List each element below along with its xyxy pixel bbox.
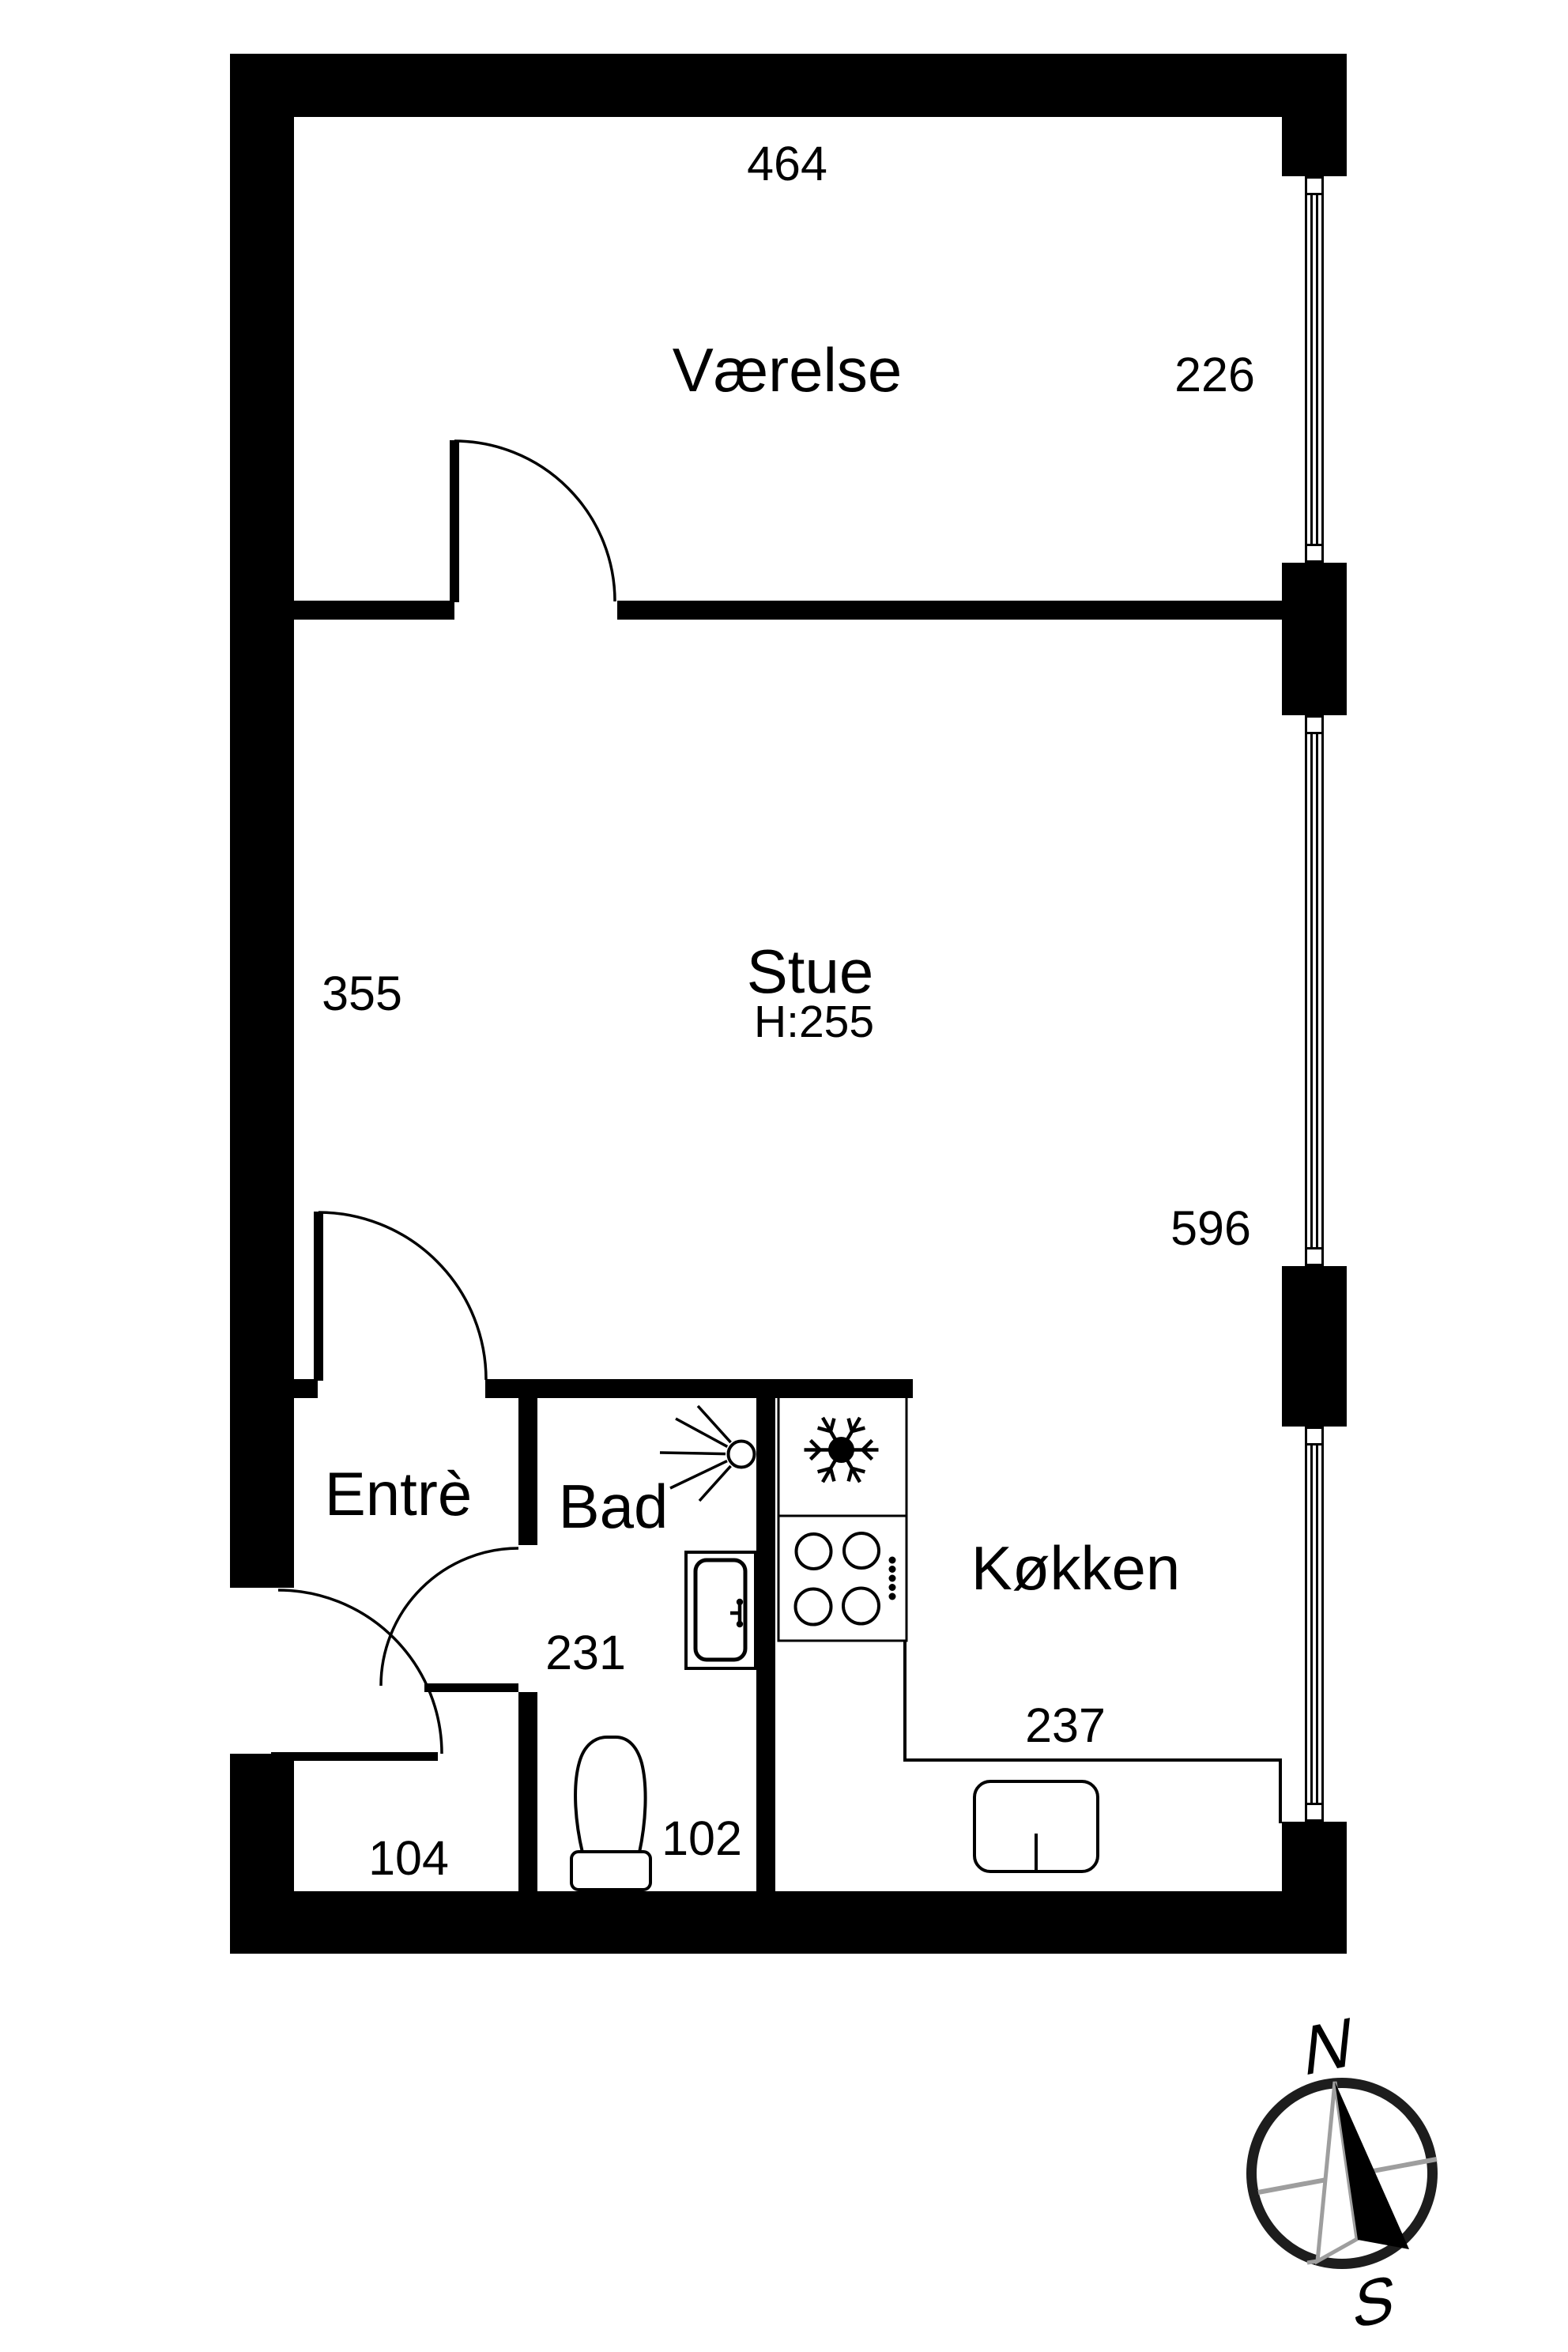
svg-text:Værelse: Værelse [673, 335, 902, 405]
svg-text:N: N [1301, 2001, 1357, 2091]
svg-text:464: 464 [747, 137, 827, 190]
svg-text:231: 231 [545, 1626, 626, 1679]
svg-text:Entrè: Entrè [325, 1459, 472, 1528]
svg-text:S: S [1350, 2261, 1399, 2343]
svg-text:355: 355 [322, 967, 402, 1020]
svg-text:H:255: H:255 [754, 997, 874, 1047]
svg-text:Køkken: Køkken [971, 1533, 1180, 1603]
svg-text:596: 596 [1170, 1201, 1251, 1255]
svg-text:237: 237 [1025, 1698, 1106, 1752]
svg-text:226: 226 [1174, 348, 1255, 401]
svg-text:104: 104 [368, 1831, 449, 1885]
svg-text:102: 102 [661, 1811, 742, 1865]
svg-text:Bad: Bad [559, 1472, 669, 1541]
svg-text:Stue: Stue [747, 937, 873, 1006]
